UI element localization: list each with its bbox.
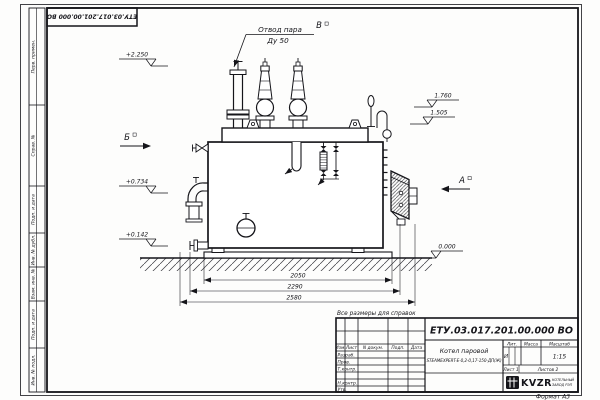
elevation-mark-1760: 1.760: [414, 93, 459, 108]
view-index-mark: [468, 177, 471, 180]
skid-base: [204, 248, 392, 258]
stamp-doc-number: ЕТУ.03.017.201.00.000 ВО: [47, 13, 137, 20]
view-arrow-v: В: [316, 21, 328, 31]
elevation-mark-0142: +0.142: [119, 232, 168, 247]
elevation-mark-0000: 0.000: [418, 244, 463, 259]
elevation-value: +0.734: [126, 179, 148, 186]
kvzr-logo-icon: [506, 376, 519, 389]
elevation-value: +2.250: [126, 52, 148, 59]
litera-value: И: [504, 354, 508, 360]
boiler-drawing-art: Перв. примен. Справ. № Подп. и дата Инв.…: [0, 0, 600, 400]
margin-label: Инв. № подл.: [31, 354, 37, 385]
engineering-drawing-sheet: Перв. примен. Справ. № Подп. и дата Инв.…: [0, 0, 600, 400]
burner-mounting-plate: [391, 171, 417, 225]
dimension-value: 2290: [287, 284, 302, 291]
view-index-mark: [325, 22, 328, 25]
elevation-value: +0.142: [126, 232, 148, 239]
logo-caption: КОТЕЛЬНЫЙ: [552, 377, 574, 382]
steam-outlet-callout: Отвод пара Ду 50: [234, 25, 314, 67]
company-logo: KVZR КОТЕЛЬНЫЙ ЗАВОД РЭП: [506, 376, 574, 389]
callout-text: Ду 50: [266, 36, 289, 45]
logo-text: KVZR: [521, 378, 552, 389]
steam-outlet-nozzle: [227, 60, 249, 128]
dimension-value: 2580: [286, 295, 301, 302]
role-label: Утв.: [338, 387, 347, 393]
litera-header: Лит.: [506, 341, 517, 347]
role-label: Н.контр.: [338, 381, 358, 387]
view-index-mark: [133, 133, 136, 136]
elevation-value: 1.760: [434, 93, 451, 100]
wall-valve: [193, 144, 209, 152]
col-header: Изм.: [335, 345, 345, 351]
col-header: N докум.: [363, 345, 383, 351]
top-inverted-stamp: ЕТУ.03.017.201.00.000 ВО: [47, 8, 137, 26]
view-label-a: А: [458, 176, 465, 186]
elevation-value: 0.000: [438, 244, 455, 251]
mass-header: Масса: [524, 341, 538, 347]
product-name: Котел паровой: [440, 348, 489, 355]
sheets-total: Листов 2: [537, 367, 559, 373]
sheet-number: Лист 1: [502, 367, 519, 373]
margin-label: Подп. и дата: [31, 309, 37, 340]
view-arrow-b: Б: [120, 133, 151, 149]
title-block: ЕТУ.03.017.201.00.000 ВО Изм. Лист N док…: [335, 318, 578, 393]
logo-caption: ЗАВОД РЭП: [552, 383, 573, 387]
col-header: Дата: [410, 345, 423, 351]
format-note: Формат А3: [536, 394, 570, 400]
elevation-value: 1.505: [430, 110, 447, 117]
view-arrow-a: А: [441, 176, 471, 192]
drain-valve: [190, 240, 208, 251]
view-label-v: В: [316, 21, 322, 31]
view-label-b: Б: [124, 133, 130, 143]
margin-label: Справ. №: [31, 134, 37, 156]
scale-header: Масштаб: [549, 341, 570, 347]
margin-label: Подп. и дата: [31, 194, 37, 225]
lever-safety-device: [367, 96, 391, 143]
col-header: Лист: [345, 345, 358, 351]
product-model: STEAMEXPERT-Е-0,2-0,17-150-ДП(Ж): [426, 358, 502, 363]
elevation-mark-0734: +0.734: [119, 179, 168, 194]
margin-label: Инв. № дубл.: [31, 235, 37, 266]
margin-field-column: Перв. примен. Справ. № Подп. и дата Инв.…: [29, 8, 45, 392]
elevation-mark-2250: +2.250: [119, 52, 168, 67]
doc-number: ЕТУ.03.017.201.00.000 ВО: [430, 326, 573, 337]
scale-value: 1:15: [553, 354, 567, 361]
top-manifold-plate: [222, 120, 368, 142]
role-label: Пров.: [338, 360, 351, 366]
margin-label: Перв. примен.: [31, 40, 37, 74]
col-header: Подп.: [391, 345, 404, 351]
margin-label: Взам. инв. №: [31, 268, 37, 299]
boiler-side-view: [0, 0, 432, 271]
role-label: Разраб.: [338, 353, 355, 359]
feedwater-elbow: [186, 177, 208, 222]
reference-note: Все размеры для справок: [337, 311, 416, 317]
role-label: Т.контр.: [338, 367, 357, 373]
ground-hatch: [140, 258, 432, 271]
callout-text: Отвод пара: [258, 25, 302, 34]
dimension-value: 2050: [290, 273, 305, 280]
elevation-mark-1505: 1.505: [410, 110, 455, 125]
